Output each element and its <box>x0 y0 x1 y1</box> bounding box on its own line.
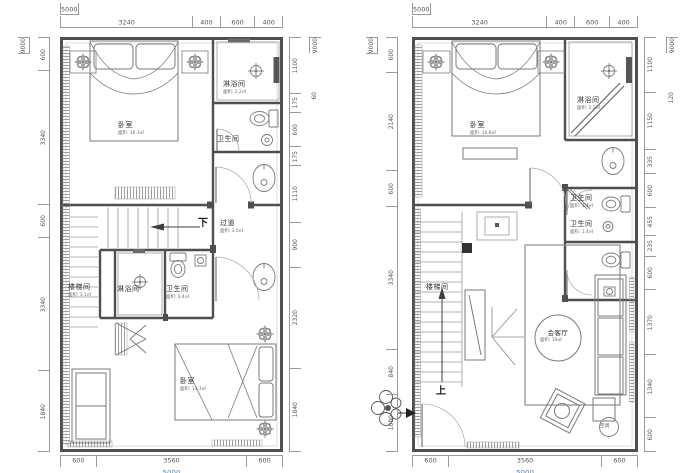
dim-segment: 1840 <box>38 370 50 452</box>
dim-value: 600 <box>586 19 598 26</box>
dim-segment: 1340 <box>644 354 656 417</box>
dim-segment: 840 <box>386 349 398 393</box>
dim-segment: 600 <box>220 16 255 28</box>
room-label-bedroom-bottom: 卧室 <box>180 378 195 386</box>
dim-value: 900 <box>293 239 299 250</box>
room-area-wc-mid: 面积: 3.4㎡ <box>166 296 189 300</box>
dim-value: 400 <box>555 19 567 26</box>
dim-value: 600 <box>41 49 47 60</box>
shower-door-mark <box>133 249 145 253</box>
dim-value: 600 <box>258 458 270 465</box>
dim-value: 600 <box>41 215 47 226</box>
room-label-shower: 淋浴间 <box>577 97 600 105</box>
dim-segment: 600 <box>574 16 609 28</box>
dim-segment: 3560 <box>96 455 246 467</box>
dim-segment: 1100 <box>644 37 656 92</box>
interior-walls <box>62 39 281 318</box>
floorplan-upper-level: 卧室 面积: 16.3㎡ 淋浴间 面积: 2.2㎡ 卫生间 下 过道 面积: 3… <box>60 37 283 452</box>
dim-value: 1100 <box>648 57 654 72</box>
washbasin-icon <box>262 135 273 146</box>
shower-room <box>569 42 632 136</box>
dim-segment: 2140 <box>386 72 398 170</box>
up-arrow <box>439 287 446 382</box>
dim-value: 3340 <box>41 130 47 145</box>
dim-value: 1840 <box>293 402 299 417</box>
dim-segment: 600 <box>644 417 656 452</box>
dim-left-total-left-plan: 9000 <box>18 37 30 452</box>
dim-segment: 600 <box>38 37 50 70</box>
dim-value: 3560 <box>517 458 534 465</box>
room-label-shower-top: 淋浴间 <box>223 81 246 89</box>
dim-segment: 9000 <box>666 37 678 53</box>
dim-segment: 600 <box>246 455 283 467</box>
dim-value: 3240 <box>118 19 135 26</box>
dim-segment: 1100 <box>289 37 301 93</box>
dim-segment: 600 <box>289 112 301 146</box>
dim-segment: 3340 <box>38 70 50 203</box>
dim-bottom-segments-left-plan: 6003560600 <box>60 455 283 467</box>
entry-door-arc <box>422 404 465 447</box>
wall-hatching <box>63 46 262 447</box>
bed-icon <box>452 41 540 159</box>
room-area-stairwell: 面积: 3.1㎡ <box>68 294 91 298</box>
dim-segment: 2320 <box>289 267 301 368</box>
ceiling-lamp-icon <box>428 54 445 71</box>
room-area-bedroom-bottom: 面积: 14.3㎡ <box>180 388 206 392</box>
room-label-stairwell: 楼梯间 <box>426 284 449 292</box>
dim-segment: 9000 <box>366 37 378 54</box>
dim-value: 3560 <box>163 458 180 465</box>
dim-segment: 3240 <box>412 16 546 28</box>
oval-basin-icon <box>602 148 624 175</box>
tv-cabinet-icon <box>465 290 485 360</box>
ac-label: 空调 <box>600 425 609 430</box>
dim-segment: 1080 <box>386 394 398 452</box>
dim-segment: 600 <box>60 455 96 467</box>
dim-value: 2320 <box>293 310 299 325</box>
dim-segment: 9000 <box>18 37 30 54</box>
wc-lower-door-arc <box>567 270 592 295</box>
plant-icon <box>492 307 524 365</box>
dim-segment: 400 <box>254 16 283 28</box>
dim-top-segments-right-plan: 3240400600400 <box>412 16 638 28</box>
dim-segment: 3340 <box>38 237 50 370</box>
dim-segment: 5000 <box>60 3 79 15</box>
room-area-living: 面积: 19㎡ <box>540 339 562 343</box>
dim-bottom-total-left-plan: 5000 <box>60 469 283 473</box>
dim-value: 400 <box>617 19 629 26</box>
ceiling-lamp-icon <box>257 421 274 438</box>
room-label-bedroom: 卧室 <box>470 122 485 130</box>
dim-value: 175 <box>293 151 299 162</box>
oval-basin-icon <box>253 165 275 192</box>
dim-segment: 175 <box>289 146 301 165</box>
ceiling-lamp-icon <box>75 54 92 71</box>
dim-top-segments-left-plan: 3240400600400 <box>60 16 283 28</box>
dim-segment: 400 <box>192 16 220 28</box>
dim-value: 455 <box>648 216 654 227</box>
room-label-stairwell: 楼梯间 <box>68 284 91 292</box>
room-label-corridor: 过道 <box>220 220 235 228</box>
dim-value: 600 <box>389 49 395 60</box>
dim-value: 175 <box>293 97 299 108</box>
dim-value: 3340 <box>41 297 47 312</box>
stairs <box>415 212 517 387</box>
dim-value: 1370 <box>648 315 654 330</box>
cabinet-icon <box>72 369 110 443</box>
dim-segment: 175 <box>289 93 301 112</box>
dim-value: 600 <box>648 267 654 278</box>
dim-segment: 9000 <box>309 37 321 53</box>
room-area-wc-lower: 面积: 1.4㎡ <box>570 231 593 235</box>
dim-value: 1080 <box>389 415 395 430</box>
room-area-corridor: 面积: 3.0㎡ <box>220 230 243 234</box>
hall-door-arc <box>216 167 251 203</box>
room-area-bedroom-top: 面积: 16.3㎡ <box>118 132 144 136</box>
dim-segment: 600 <box>412 455 448 467</box>
dim-segment: 3340 <box>386 206 398 350</box>
toilet-icon <box>170 253 206 278</box>
dim-value: 600 <box>613 458 625 465</box>
room-area-wc-upper: 面积: 1.4㎡ <box>570 205 593 209</box>
dim-value: 2140 <box>389 114 395 129</box>
shower-head-icon <box>248 63 264 79</box>
bed-icon <box>90 41 178 141</box>
room-label-bedroom-top: 卧室 <box>118 122 133 130</box>
dim-value: 1100 <box>293 58 299 73</box>
dim-bottom-segments-right-plan: 6003560600 <box>412 455 638 467</box>
stair-post <box>462 243 472 253</box>
dim-left-segments-left-plan: 600334060033401840 <box>38 37 50 452</box>
room-label-wc-top: 卫生间 <box>217 136 240 144</box>
dim-segment: 3560 <box>448 455 601 467</box>
dim-right-total-right-plan: 9000 120 <box>666 37 678 452</box>
dim-segment: 5000 <box>412 3 431 15</box>
dim-right-total-left-plan: 9000 60 <box>309 37 321 452</box>
dim-segment: 600 <box>644 173 656 207</box>
dim-segment: 455 <box>644 207 656 235</box>
dim-top-total-right-plan: 5000 <box>412 3 638 15</box>
dim-value: 600 <box>389 183 395 194</box>
dim-value: 235 <box>648 240 654 251</box>
armchair-icon <box>540 388 585 433</box>
dim-bottom-total-right-plan: 5000 <box>412 469 638 473</box>
dim-segment: 600 <box>386 170 398 205</box>
floorplan-drawing-left <box>60 37 283 452</box>
shower-head-icon <box>601 63 617 79</box>
cad-floorplan-canvas: 卧室 面积: 16.3㎡ 淋浴间 面积: 2.2㎡ 卫生间 下 过道 面积: 3… <box>0 0 694 473</box>
dim-value: 3340 <box>389 270 395 285</box>
dim-top-total-left-plan: 5000 <box>60 3 283 15</box>
hall2-door-arc <box>216 257 259 301</box>
dim-segment: 900 <box>289 222 301 267</box>
room-label-wc-mid: 卫生间 <box>166 286 189 294</box>
dim-right-segments-right-plan: 1100115033560045523560013701340600 <box>644 37 656 452</box>
dim-value: 1110 <box>293 186 299 201</box>
toilet-icon <box>250 110 278 127</box>
dim-value: 1840 <box>41 404 47 419</box>
up-label: 上 <box>436 387 446 397</box>
down-label: 下 <box>198 219 208 229</box>
bedroom-door-arc <box>530 168 566 205</box>
floorplan-lower-level: 卧室 面积: 10.8㎡ 淋浴间 面积: 2.2㎡ 卫生间 面积: 1.4㎡ 卫… <box>412 37 638 452</box>
dim-value: 600 <box>293 124 299 135</box>
dim-extra-value: 120 <box>668 92 675 103</box>
dim-segment: 1840 <box>289 368 301 452</box>
dim-segment: 400 <box>546 16 574 28</box>
dim-segment: 600 <box>38 204 50 237</box>
dim-segment: 400 <box>609 16 638 28</box>
room-area-bedroom: 面积: 10.8㎡ <box>470 132 496 136</box>
dim-value: 600 <box>648 185 654 196</box>
dim-value: 400 <box>200 19 212 26</box>
room-area-shower-top: 面积: 2.2㎡ <box>223 91 246 95</box>
stair-winder <box>115 323 146 355</box>
dim-value: 600 <box>648 429 654 440</box>
dim-left-total-right-plan: 9000 <box>366 37 378 452</box>
ceiling-lamp-icon <box>187 54 204 71</box>
down-arrow <box>150 224 200 231</box>
dim-segment: 235 <box>644 235 656 256</box>
dim-value: 1150 <box>648 113 654 128</box>
dim-segment: 1110 <box>289 165 301 222</box>
dim-segment: 1150 <box>644 92 656 149</box>
sofa-icon <box>595 275 626 395</box>
room-label-living: 会客厅 <box>536 330 580 337</box>
room-label-wc-lower: 卫生间 <box>570 221 593 229</box>
dim-value: 400 <box>263 19 275 26</box>
dim-segment: 1370 <box>644 289 656 354</box>
room-area-shower: 面积: 2.2㎡ <box>577 107 600 111</box>
dim-segment: 3240 <box>60 16 192 28</box>
dim-segment: 335 <box>644 149 656 173</box>
dim-left-segments-right-plan: 600214060033408401080 <box>386 37 398 452</box>
dim-value: 600 <box>72 458 84 465</box>
dim-value: 335 <box>648 156 654 167</box>
ceiling-lamp-icon <box>257 326 274 343</box>
dim-value: 1340 <box>648 379 654 394</box>
room-label-wc-upper: 卫生间 <box>570 195 593 203</box>
dim-value: 840 <box>389 366 395 377</box>
door-jambs <box>525 184 568 302</box>
room-label-shower-mid: 淋浴间 <box>117 286 140 294</box>
dim-value: 3240 <box>471 19 488 26</box>
dim-value: 600 <box>231 19 243 26</box>
dim-value: 600 <box>424 458 436 465</box>
dim-segment: 600 <box>601 455 638 467</box>
dim-segment: 600 <box>386 37 398 72</box>
ceiling-lamp-icon <box>543 54 560 71</box>
dim-segment: 600 <box>644 256 656 290</box>
dim-right-segments-left-plan: 1100175600175111090023201840 <box>289 37 301 452</box>
dim-extra-value: 60 <box>311 92 318 100</box>
